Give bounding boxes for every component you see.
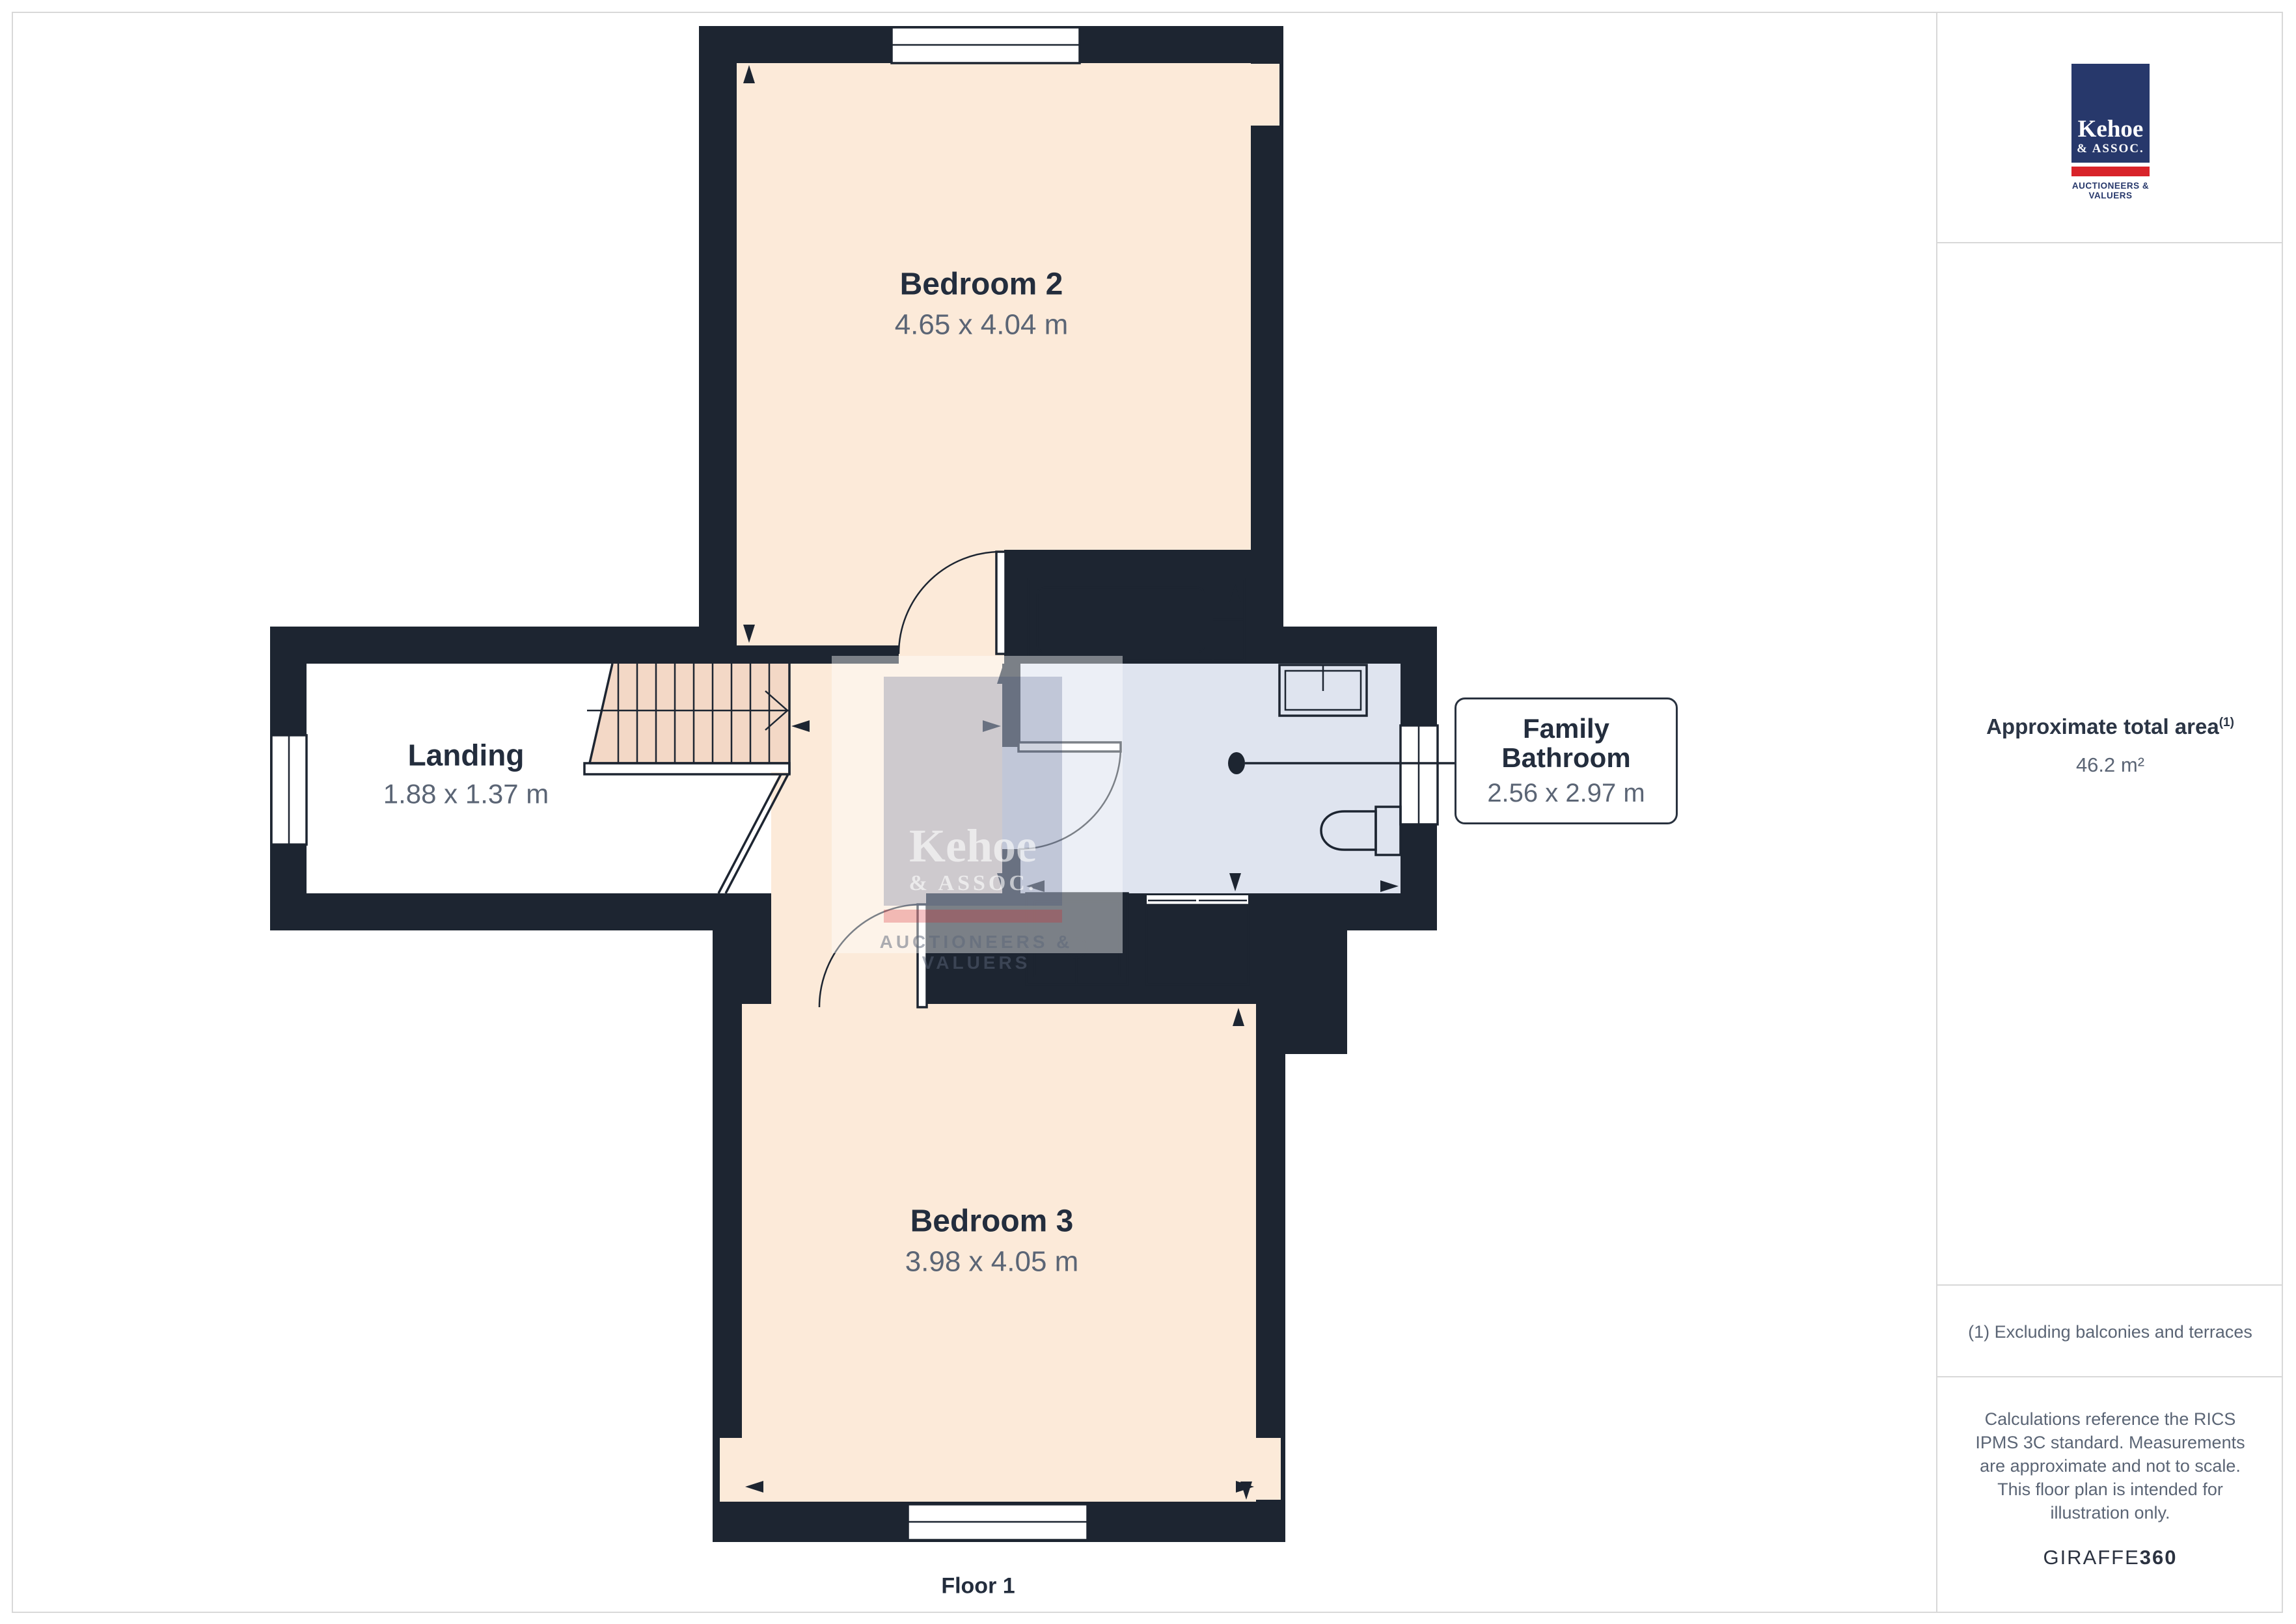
- room-dims: 3.98 x 4.05 m: [905, 1245, 1079, 1278]
- bedroom3-door-leaf: [918, 904, 927, 1007]
- total-area-text: Approximate total area: [1986, 714, 2219, 738]
- bedroom3-recess-right: [1256, 1438, 1281, 1500]
- brand-light: GIRAFFE: [2043, 1546, 2139, 1569]
- agency-logo-suffix: & ASSOC.: [2077, 141, 2144, 157]
- disclaimer: Calculations reference the RICS IPMS 3C …: [1963, 1407, 2257, 1524]
- bedroom2-doorway: [899, 645, 1004, 664]
- bathroom-callout: Family Bathroom 2.56 x 2.97 m: [1455, 697, 1678, 824]
- room-dims: 4.65 x 4.04 m: [895, 308, 1069, 341]
- brand-logo: GIRAFFE360: [1937, 1546, 2283, 1569]
- room-name: Landing: [383, 739, 549, 772]
- agency-logo-name: Kehoe: [2078, 117, 2144, 141]
- total-area-footnote-mark: (1): [2219, 716, 2234, 729]
- total-area-value: 46.2 m²: [1937, 753, 2283, 777]
- bathroom-door-leaf: [1018, 742, 1121, 751]
- floor-label: Floor 1: [941, 1574, 1015, 1599]
- agency-logo-red-bar: [2071, 167, 2150, 176]
- room-name: Bedroom 2: [895, 268, 1069, 303]
- floor-plan-page: Kehoe & ASSOC. AUCTIONEERS & VALUERS Bed…: [0, 0, 2296, 1624]
- hall-floor-corridor: [771, 772, 926, 1007]
- agency-logo-tagline: AUCTIONEERS & VALUERS: [2058, 181, 2163, 200]
- landing-label: Landing 1.88 x 1.37 m: [383, 739, 549, 810]
- brand-bold: 360: [2140, 1546, 2178, 1569]
- total-area-label: Approximate total area(1): [1937, 714, 2283, 739]
- footnote: (1) Excluding balconies and terraces: [1937, 1322, 2283, 1342]
- room-name: Bedroom 3: [905, 1205, 1079, 1239]
- room-name-line1: Family: [1523, 714, 1609, 743]
- floor-plan-drawing: [0, 0, 2296, 1624]
- bedroom2-label: Bedroom 2 4.65 x 4.04 m: [895, 268, 1069, 342]
- callout-anchor-dot: [1228, 752, 1245, 774]
- bathroom-doorway: [1002, 747, 1020, 849]
- room-dims: 1.88 x 1.37 m: [383, 778, 549, 809]
- bathroom-floor: [1020, 664, 1401, 893]
- bedroom3-recess-left: [720, 1438, 743, 1502]
- bedroom3-label: Bedroom 3 3.98 x 4.05 m: [905, 1205, 1079, 1279]
- bedroom2-door-leaf: [996, 552, 1005, 654]
- room-dims: 2.56 x 2.97 m: [1487, 779, 1645, 808]
- room-name-line2: Bathroom: [1501, 743, 1630, 772]
- agency-logo: Kehoe & ASSOC.: [2071, 64, 2150, 163]
- bedroom2-recess: [1251, 64, 1279, 126]
